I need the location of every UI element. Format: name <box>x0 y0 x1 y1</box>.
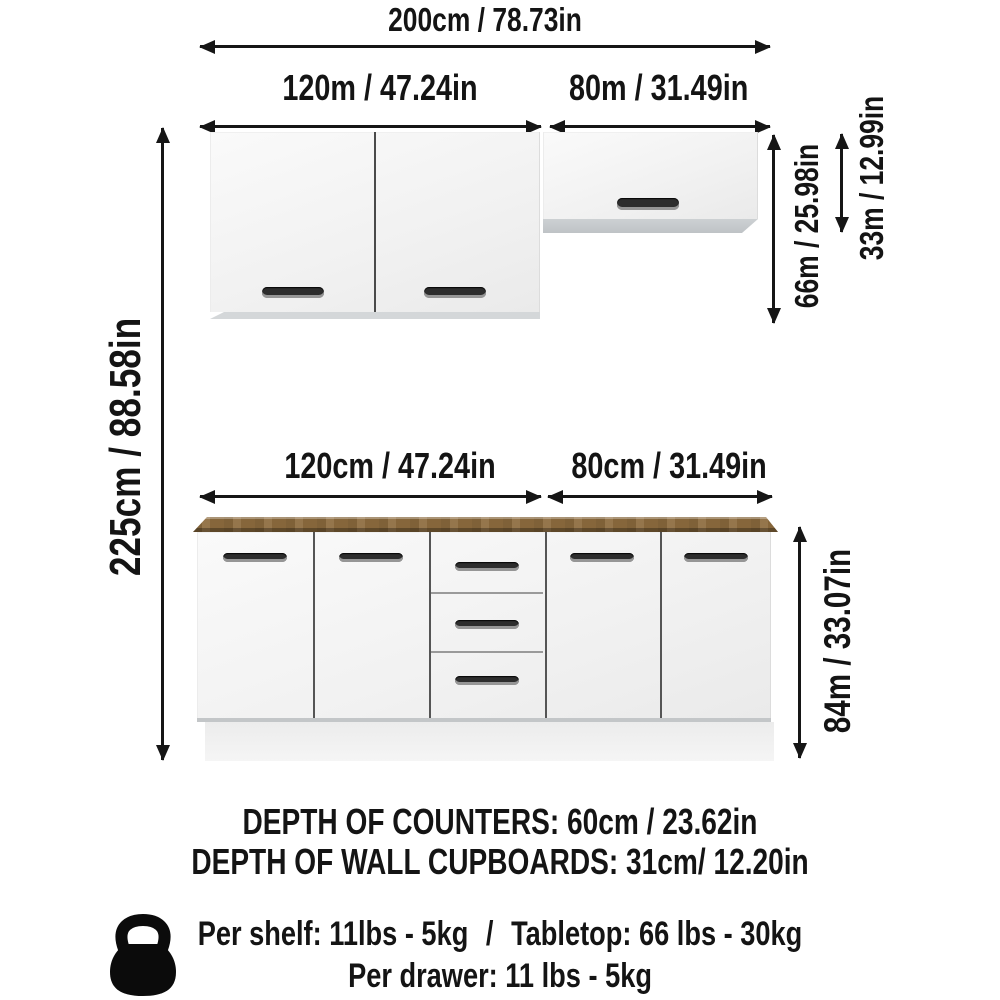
wall-small-cabinet-height-label: 33m / 12.99in <box>853 96 891 260</box>
load-capacity-line-2: Per drawer: 11 lbs - 5kg <box>148 955 852 997</box>
drawer-gap <box>431 592 543 594</box>
wall-cabinet-right <box>543 132 758 219</box>
base-right-width-label: 80cm / 31.49in <box>571 446 742 486</box>
base-door-gap <box>660 532 662 718</box>
per-shelf-capacity: Per shelf: 11lbs - 5kg <box>198 913 469 955</box>
load-capacity-line-1: Per shelf: 11lbs - 5kg / Tabletop: 66 lb… <box>148 913 852 955</box>
base-left-width-arrow <box>200 495 541 498</box>
wall-cupboard-depth-note: DEPTH OF WALL CUPBOARDS: 31cm/ 12.20in <box>157 842 843 882</box>
base-door-handle <box>570 553 634 562</box>
tabletop-capacity: Tabletop: 66 lbs - 30kg <box>511 913 802 955</box>
base-door-gap <box>313 532 315 718</box>
kitchen-dimensions-diagram: 200cm / 78.73in 120m / 47.24in 80m / 31.… <box>0 0 1000 1000</box>
wall-small-cabinet-height-arrow <box>840 134 843 232</box>
base-door-handle <box>223 553 287 562</box>
base-door-handle <box>684 553 748 562</box>
total-height-label: 225cm / 88.58in <box>101 318 151 576</box>
counter-depth-note: DEPTH OF COUNTERS: 60cm / 23.62in <box>157 802 843 842</box>
base-door-gap <box>429 532 431 718</box>
wall-right-width-label: 80m / 31.49in <box>569 68 737 108</box>
base-door-handle <box>339 553 403 562</box>
base-left-width-label: 120cm / 47.24in <box>242 446 538 486</box>
wall-cabinet-height-arrow <box>772 135 775 323</box>
base-door-gap <box>545 532 547 718</box>
wall-right-width-arrow <box>550 125 770 128</box>
wall-door-handle <box>262 287 324 298</box>
wall-cabinet-height-label: 66m / 25.98in <box>788 144 826 308</box>
plinth <box>205 722 774 761</box>
wall-left-width-arrow <box>200 125 541 128</box>
drawer-handle <box>455 562 519 571</box>
base-cabinet-height-arrow <box>798 527 801 758</box>
drawer-gap <box>431 651 543 653</box>
wall-door-gap <box>374 132 376 312</box>
wall-left-width-label: 120m / 47.24in <box>236 68 524 108</box>
total-width-arrow <box>200 45 770 48</box>
wall-cabinet-left-bottom-bevel <box>210 312 540 319</box>
wall-door-handle <box>617 198 679 210</box>
drawer-handle <box>455 620 519 629</box>
wall-door-handle <box>424 287 486 298</box>
base-cabinet <box>197 532 771 718</box>
wall-cabinet-left <box>210 132 540 312</box>
drawer-handle <box>455 676 519 685</box>
total-height-arrow <box>161 128 164 760</box>
per-drawer-capacity: Per drawer: 11 lbs - 5kg <box>348 955 652 997</box>
capacity-separator: / <box>486 913 494 955</box>
countertop <box>193 517 778 532</box>
base-right-width-arrow <box>548 495 772 498</box>
base-cabinet-height-label: 84m / 33.07in <box>817 549 859 733</box>
total-width-label: 200cm / 78.73in <box>257 2 713 38</box>
wall-cabinet-right-bottom-bevel <box>543 219 758 233</box>
